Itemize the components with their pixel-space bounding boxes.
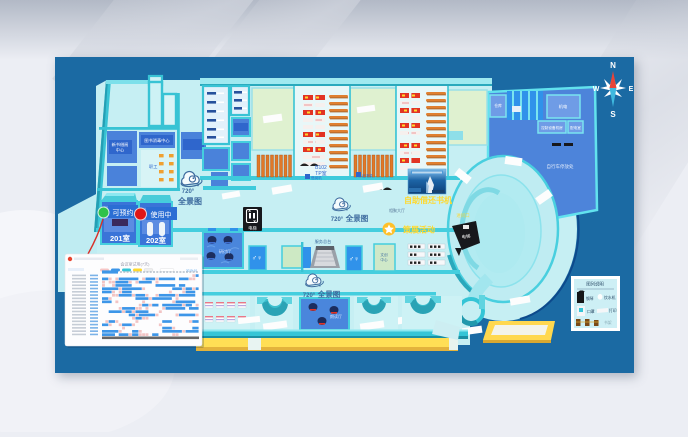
- svg-text:打印: 打印: [609, 308, 617, 313]
- svg-text:服务总台: 服务总台: [315, 238, 332, 245]
- svg-text:全景图: 全景图: [317, 289, 341, 299]
- svg-text:文创: 文创: [380, 252, 388, 257]
- svg-text:会议室试用(7天): 会议室试用(7天): [121, 261, 151, 267]
- svg-text:720°: 720°: [331, 217, 344, 223]
- svg-text:可预约: 可预约: [113, 208, 134, 217]
- svg-text:朗读厅: 朗读厅: [330, 313, 342, 319]
- svg-text:自助借还书机: 自助借还书机: [404, 195, 452, 205]
- svg-text:书架: 书架: [604, 320, 612, 325]
- svg-text:720°: 720°: [303, 293, 316, 299]
- svg-text:钢琴: 钢琴: [586, 296, 594, 301]
- svg-text:配电室: 配电室: [570, 125, 581, 130]
- svg-text:饮水机: 饮水机: [604, 295, 616, 300]
- svg-text:相聚大厅: 相聚大厅: [389, 207, 405, 213]
- svg-text:电梯: 电梯: [248, 225, 256, 232]
- svg-text:使用中: 使用中: [151, 210, 172, 219]
- svg-text:图书消毒中心: 图书消毒中心: [144, 137, 170, 144]
- svg-text:720°: 720°: [182, 189, 195, 195]
- svg-text:研讨厅: 研讨厅: [219, 248, 232, 255]
- svg-text:口罩: 口罩: [587, 309, 595, 314]
- svg-text:机电: 机电: [559, 103, 568, 110]
- svg-text:全景图: 全景图: [177, 196, 202, 206]
- svg-text:仓库: 仓库: [494, 103, 502, 108]
- svg-text:图列说明: 图列说明: [586, 281, 604, 288]
- svg-text:进问口: 进问口: [456, 212, 469, 219]
- svg-text:♂♀: ♂♀: [349, 256, 360, 263]
- svg-text:N: N: [610, 61, 616, 70]
- svg-text:202室: 202室: [146, 235, 167, 245]
- svg-text:中心: 中心: [116, 147, 125, 154]
- svg-text:W: W: [593, 86, 600, 93]
- svg-text:中心: 中心: [380, 257, 388, 262]
- svg-text:策展活动: 策展活动: [403, 225, 435, 235]
- svg-text:201室: 201室: [110, 233, 131, 243]
- svg-text:S: S: [610, 110, 616, 119]
- svg-text:全景图: 全景图: [345, 213, 369, 223]
- svg-text:还书机: 还书机: [362, 173, 373, 178]
- svg-text:♂♀: ♂♀: [252, 255, 263, 262]
- svg-text:借阅机: 借阅机: [311, 175, 322, 180]
- svg-text:E: E: [629, 86, 634, 93]
- svg-text:自行车停放处: 自行车停放处: [547, 163, 574, 170]
- svg-text:控制设备机房: 控制设备机房: [541, 125, 563, 130]
